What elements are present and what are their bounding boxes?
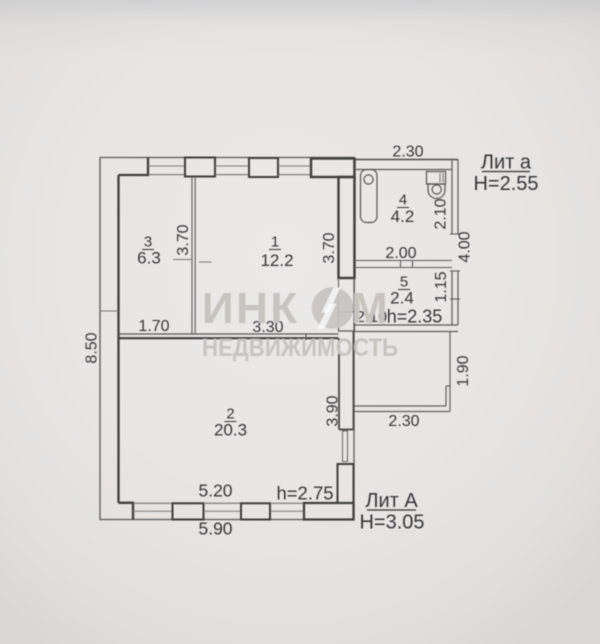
svg-text:ИНК: ИНК [202, 284, 300, 333]
svg-text:8.50: 8.50 [84, 332, 101, 363]
svg-text:1.70: 1.70 [138, 318, 169, 335]
svg-text:1: 1 [271, 234, 279, 251]
svg-text:4: 4 [399, 192, 407, 209]
svg-text:2.00: 2.00 [385, 245, 416, 262]
svg-text:4.2: 4.2 [391, 207, 415, 226]
svg-text:3.70: 3.70 [321, 232, 338, 263]
svg-text:1.15: 1.15 [433, 271, 450, 302]
svg-text:20.3: 20.3 [214, 421, 247, 440]
svg-text:2.10: 2.10 [433, 198, 450, 229]
svg-text:М: М [351, 284, 388, 333]
svg-text:12.2: 12.2 [260, 251, 293, 270]
svg-text:5.20: 5.20 [198, 481, 232, 501]
svg-text:2.30: 2.30 [388, 413, 419, 430]
svg-text:1.90: 1.90 [455, 355, 472, 386]
svg-text:4.00: 4.00 [457, 231, 474, 262]
svg-text:Лит А: Лит А [365, 490, 418, 512]
svg-text:Лит а: Лит а [481, 152, 532, 174]
svg-text:h=2.75: h=2.75 [276, 483, 333, 504]
svg-text:2.4: 2.4 [390, 289, 414, 308]
svg-text:5.90: 5.90 [198, 519, 232, 539]
svg-text:3.90: 3.90 [325, 395, 342, 426]
svg-text:H=2.55: H=2.55 [473, 173, 538, 195]
svg-text:h=2.35: h=2.35 [387, 307, 443, 327]
svg-text:НЕДВИЖИМОСТЬ: НЕДВИЖИМОСТЬ [202, 334, 398, 362]
svg-text:H=3.05: H=3.05 [359, 512, 424, 534]
svg-text:2.30: 2.30 [392, 144, 423, 161]
svg-text:3.70: 3.70 [175, 224, 192, 255]
svg-text:6.3: 6.3 [137, 249, 161, 268]
